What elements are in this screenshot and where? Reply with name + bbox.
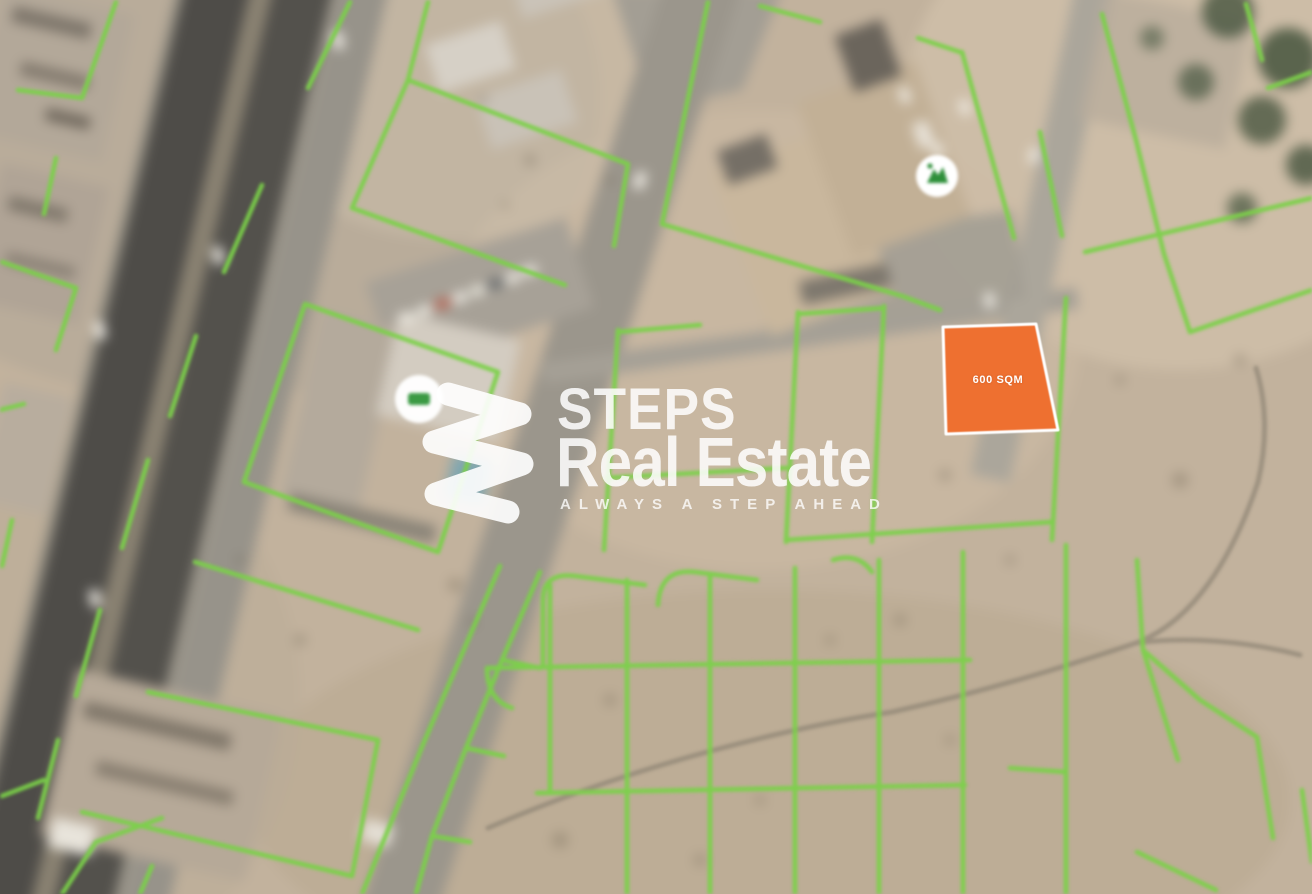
steps-logo-icon <box>408 368 558 528</box>
watermark-tagline: ALWAYS A STEP AHEAD <box>560 497 888 512</box>
plot-area-label: 600 SQM <box>952 374 1044 386</box>
satellite-map: 600 SQM STEPS Real Estate ALWAYS A STEP … <box>0 0 1312 894</box>
watermark-brand-line2: Real Estate <box>556 427 871 497</box>
